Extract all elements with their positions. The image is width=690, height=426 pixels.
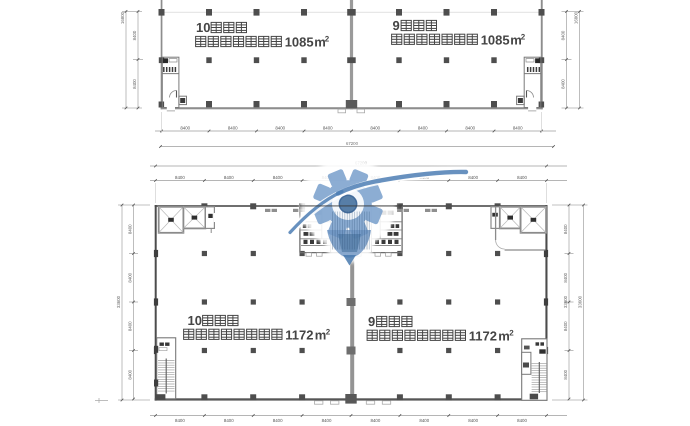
svg-text:67200: 67200 bbox=[346, 141, 359, 146]
svg-text:8400: 8400 bbox=[513, 125, 523, 130]
svg-text:8400: 8400 bbox=[128, 369, 133, 379]
svg-text:1172: 1172 bbox=[285, 327, 313, 342]
svg-text:8400: 8400 bbox=[228, 125, 238, 130]
svg-text:8400: 8400 bbox=[563, 224, 568, 234]
svg-text:8400: 8400 bbox=[465, 125, 475, 130]
svg-text:8400: 8400 bbox=[563, 369, 568, 379]
svg-text:8400: 8400 bbox=[128, 321, 133, 331]
svg-text:8400: 8400 bbox=[563, 272, 568, 282]
svg-text:8400: 8400 bbox=[224, 175, 234, 180]
svg-text:8400: 8400 bbox=[275, 125, 285, 130]
svg-text:8400: 8400 bbox=[180, 125, 190, 130]
svg-text:1085: 1085 bbox=[285, 35, 314, 50]
svg-text:1085: 1085 bbox=[481, 32, 510, 47]
svg-text:33600: 33600 bbox=[578, 295, 583, 308]
svg-text:8400: 8400 bbox=[175, 175, 185, 180]
svg-text:8400: 8400 bbox=[132, 30, 137, 40]
svg-text:8400: 8400 bbox=[517, 175, 527, 180]
svg-text:8400: 8400 bbox=[370, 125, 380, 130]
svg-text:2: 2 bbox=[509, 328, 514, 337]
svg-text:10: 10 bbox=[196, 20, 210, 35]
svg-text:8400: 8400 bbox=[371, 418, 381, 423]
svg-text:10: 10 bbox=[188, 313, 202, 328]
svg-text:8400: 8400 bbox=[224, 418, 234, 423]
svg-text:8400: 8400 bbox=[132, 79, 137, 89]
svg-text:8400: 8400 bbox=[418, 125, 428, 130]
svg-text:33600: 33600 bbox=[563, 295, 568, 308]
svg-text:8400: 8400 bbox=[322, 418, 332, 423]
svg-text:16800: 16800 bbox=[120, 11, 125, 24]
svg-text:2: 2 bbox=[325, 35, 330, 44]
svg-text:1172: 1172 bbox=[469, 328, 497, 343]
svg-text:8400: 8400 bbox=[175, 418, 185, 423]
svg-text:2: 2 bbox=[326, 327, 331, 336]
svg-text:33600: 33600 bbox=[116, 295, 121, 308]
svg-text:8400: 8400 bbox=[273, 418, 283, 423]
svg-text:8400: 8400 bbox=[517, 418, 527, 423]
svg-text:8400: 8400 bbox=[468, 418, 478, 423]
svg-text:2: 2 bbox=[521, 32, 526, 41]
svg-text:8400: 8400 bbox=[128, 224, 133, 234]
svg-text:8400: 8400 bbox=[561, 79, 566, 89]
svg-text:16800: 16800 bbox=[574, 11, 579, 24]
svg-text:8400: 8400 bbox=[561, 30, 566, 40]
svg-text:8400: 8400 bbox=[468, 175, 478, 180]
svg-text:9: 9 bbox=[368, 314, 375, 329]
svg-text:8400: 8400 bbox=[273, 175, 283, 180]
svg-text:m: m bbox=[498, 328, 510, 343]
svg-text:8400: 8400 bbox=[323, 125, 333, 130]
svg-text:8400: 8400 bbox=[563, 321, 568, 331]
svg-text:8400: 8400 bbox=[128, 272, 133, 282]
svg-text:9: 9 bbox=[393, 18, 400, 33]
svg-text:m: m bbox=[315, 327, 327, 342]
svg-text:8400: 8400 bbox=[419, 418, 429, 423]
